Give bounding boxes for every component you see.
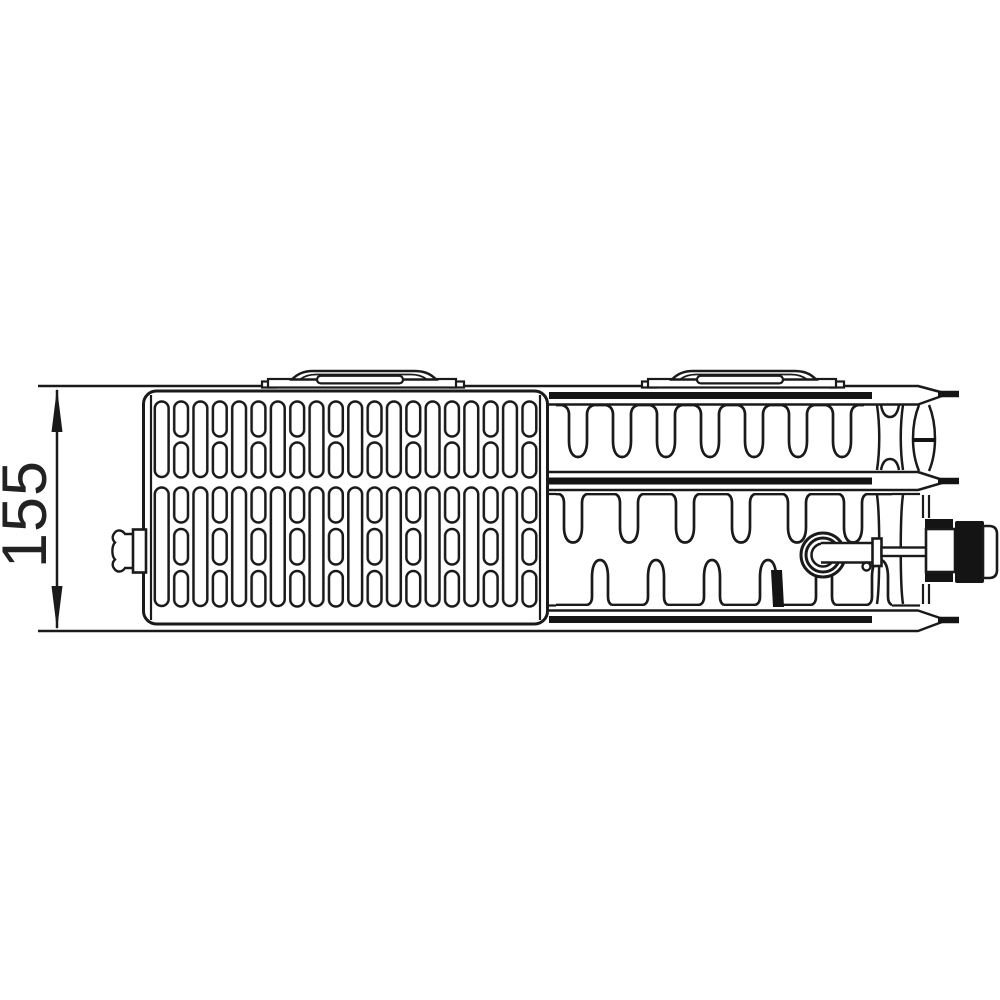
valve-stem-flange [873, 539, 882, 567]
connection-body [926, 529, 955, 572]
air-vent-plug [112, 530, 146, 573]
convector-section [549, 394, 997, 620]
connection-thread-bottom [925, 572, 953, 582]
connection-thread-top [925, 519, 953, 529]
mounting-bracket-right [642, 371, 844, 388]
radiator-top-view-drawing: 155 [0, 0, 1000, 1000]
valve-detail-dot [863, 563, 871, 571]
dimension-label: 155 [0, 460, 60, 568]
valve-connection-fitting [925, 519, 997, 583]
front-grille-panel [144, 391, 548, 624]
dimension-arrow-down [52, 586, 63, 630]
valve-stem-fill [821, 543, 874, 563]
connection-end-cap [983, 526, 997, 578]
upper-channel-left [877, 405, 879, 470]
upper-convector-fins [556, 404, 864, 475]
plug-cap [112, 530, 134, 571]
upper-channel-notch-bottom [881, 459, 899, 470]
connection-cylinder [955, 521, 984, 583]
upper-channel-right [901, 405, 903, 470]
dimension-arrow-up [52, 388, 63, 432]
weld-mark [771, 570, 784, 607]
mounting-bracket-left [262, 371, 464, 388]
valve-spindle-pipe [882, 548, 927, 557]
grille-slots-upper [153, 400, 540, 479]
grille-slots-lower [153, 486, 540, 608]
radiator-technical-drawing-page: 155 [0, 0, 1000, 1000]
upper-channel-notch-top [881, 405, 899, 417]
plug-flange [133, 530, 146, 573]
